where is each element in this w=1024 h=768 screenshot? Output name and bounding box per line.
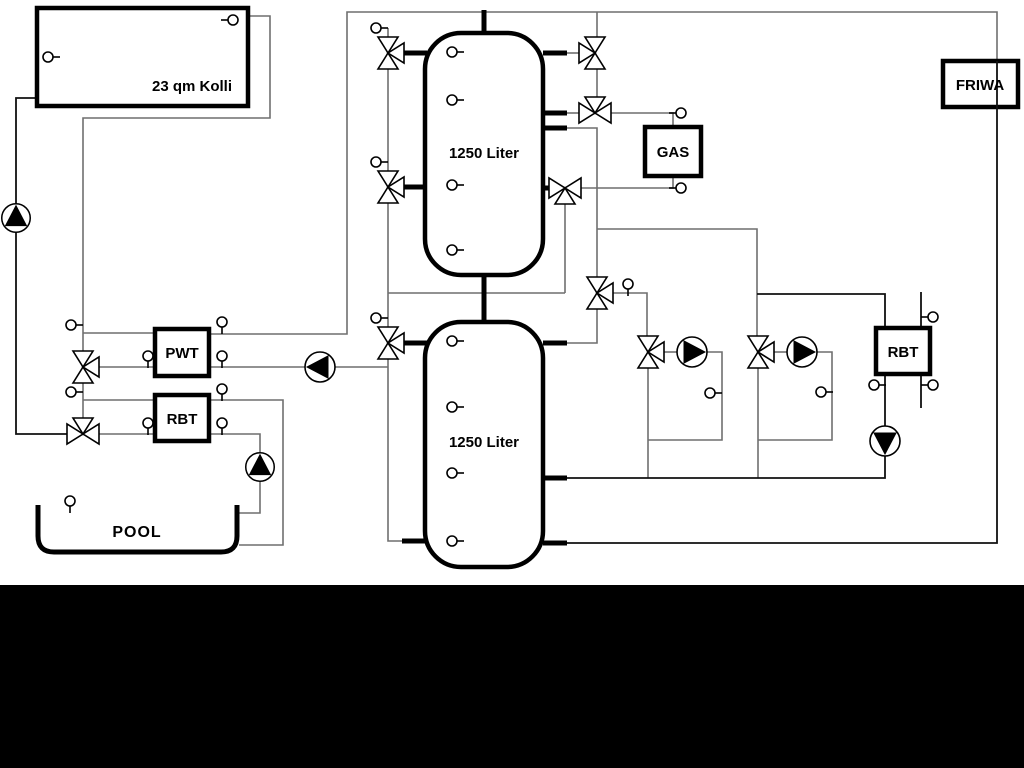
tank2-label: 1250 Liter (449, 434, 519, 451)
pool-label: POOL (112, 524, 161, 541)
rbt-right-label: RBT (888, 344, 919, 361)
friwa-label: FRIWA (956, 77, 1004, 94)
pwt-label: PWT (165, 345, 198, 362)
tank1-label: 1250 Liter (449, 145, 519, 162)
collector-label: 23 qm Kolli (152, 78, 232, 95)
pwt-pump-icon (305, 352, 335, 382)
solar-pump-icon (2, 204, 31, 233)
bottom-black-bar (0, 585, 1024, 768)
circuit2-pump-icon (787, 337, 817, 367)
rbt-pump-icon (870, 426, 900, 456)
hydraulic-schematic-page: 23 qm Kolli 1250 Liter 1250 Liter PWT RB… (0, 0, 1024, 768)
hydraulic-schematic: 23 qm Kolli 1250 Liter 1250 Liter PWT RB… (0, 0, 1024, 768)
gas-label: GAS (657, 144, 690, 161)
circuit1-pump-icon (677, 337, 707, 367)
pool-pump-icon (246, 453, 275, 482)
rbt-left-label: RBT (167, 411, 198, 428)
